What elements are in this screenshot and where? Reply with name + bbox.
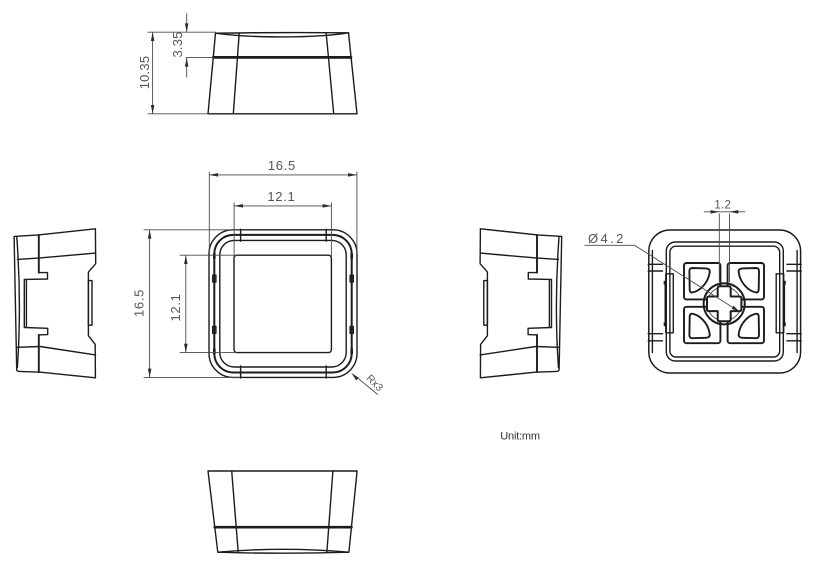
svg-text:1.2: 1.2 bbox=[714, 199, 731, 211]
svg-text:10.35: 10.35 bbox=[137, 56, 152, 90]
svg-text:16.5: 16.5 bbox=[268, 158, 296, 173]
svg-text:3.35: 3.35 bbox=[170, 31, 185, 57]
svg-text:12.1: 12.1 bbox=[168, 293, 183, 321]
svg-text:12.1: 12.1 bbox=[267, 189, 295, 204]
svg-text:Ø4.2: Ø4.2 bbox=[588, 231, 626, 246]
svg-text:16.5: 16.5 bbox=[132, 289, 147, 317]
svg-text:Rx3: Rx3 bbox=[364, 372, 386, 394]
svg-text:Unit:mm: Unit:mm bbox=[500, 430, 540, 442]
